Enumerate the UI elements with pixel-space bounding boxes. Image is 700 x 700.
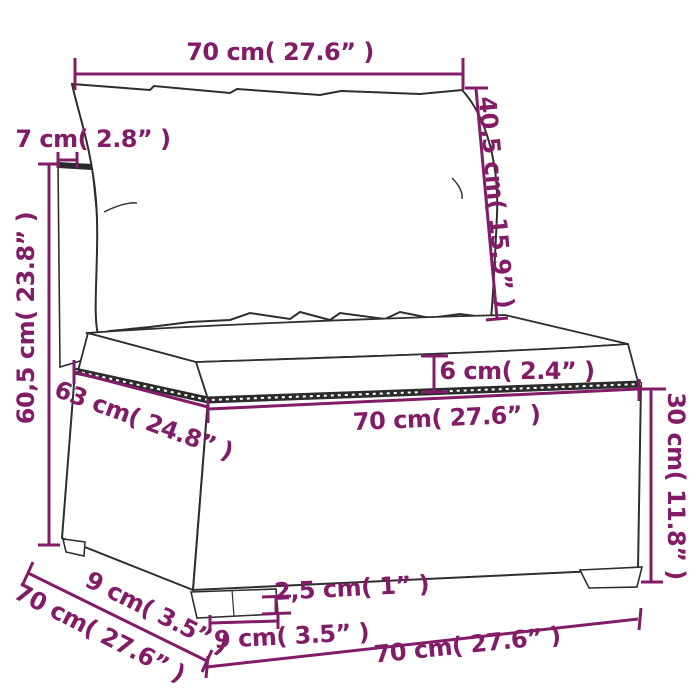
dim-back-width-label: 70 cm( 27.6” ) — [186, 38, 374, 66]
sofa-line-art — [58, 84, 642, 618]
back-cushion — [72, 84, 497, 334]
dim-base-height: 30 cm( 11.8” ) — [638, 389, 690, 582]
dim-back-panel-thickness-label: 7 cm( 2.8” ) — [15, 125, 170, 153]
dim-total-width-bottom-label: 70 cm( 27.6” ) — [372, 621, 562, 668]
dim-total-height: 60,5 cm( 23.8” ) — [12, 164, 60, 545]
dim-foot-width: 9 cm( 3.5” ) — [210, 613, 370, 654]
back-panel-top-edge — [58, 165, 92, 167]
foot-back-left — [63, 539, 85, 556]
product-dimension-diagram: 70 cm( 27.6” ) 7 cm( 2.8” ) 40,5 cm( 15.… — [0, 0, 700, 700]
dim-base-height-label: 30 cm( 11.8” ) — [662, 392, 690, 580]
sofa-dimension-drawing: 70 cm( 27.6” ) 7 cm( 2.8” ) 40,5 cm( 15.… — [0, 0, 700, 700]
foot-front-right — [580, 567, 642, 588]
dim-back-width: 70 cm( 27.6” ) — [75, 38, 463, 90]
dim-total-height-label: 60,5 cm( 23.8” ) — [12, 212, 40, 424]
dim-seat-cushion-thickness-label: 6 cm( 2.4” ) — [439, 357, 594, 385]
dim-foot-height: 2,5 cm( 1” ) — [262, 570, 430, 614]
